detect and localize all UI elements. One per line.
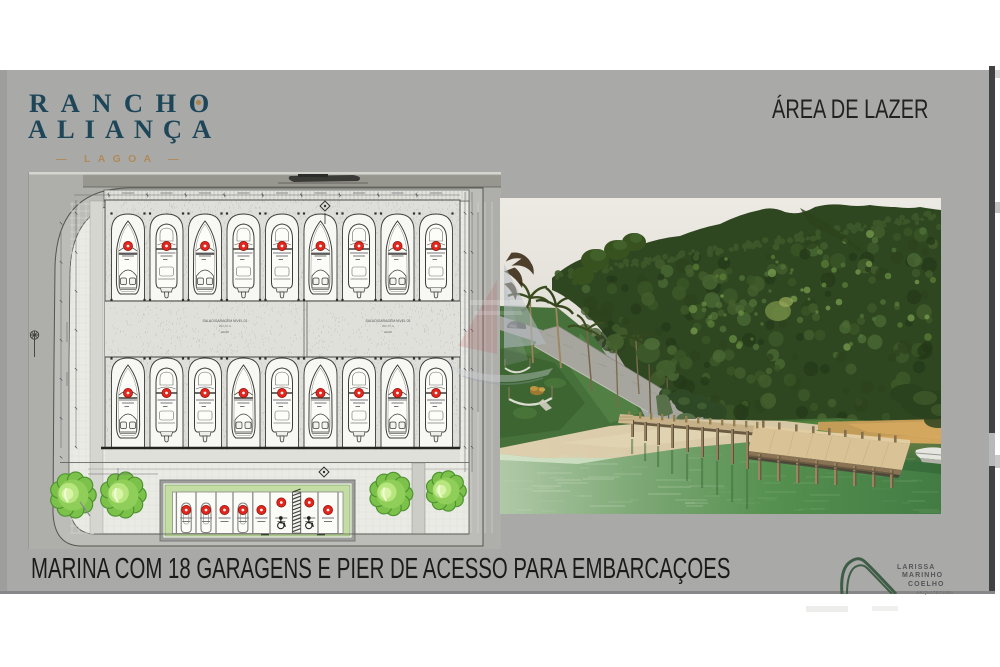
svg-text:●0,00: ●0,00: [384, 330, 392, 334]
svg-text:SALAO/GARAGEM NIVEL 01: SALAO/GARAGEM NIVEL 01: [203, 319, 248, 323]
svg-text:SALAO/GARAGEM NIVEL 02: SALAO/GARAGEM NIVEL 02: [366, 319, 411, 323]
svg-text:352,70 m: 352,70 m: [382, 324, 395, 328]
svg-text:●0,00: ●0,00: [221, 330, 229, 334]
svg-text:352,70 m: 352,70 m: [219, 324, 232, 328]
